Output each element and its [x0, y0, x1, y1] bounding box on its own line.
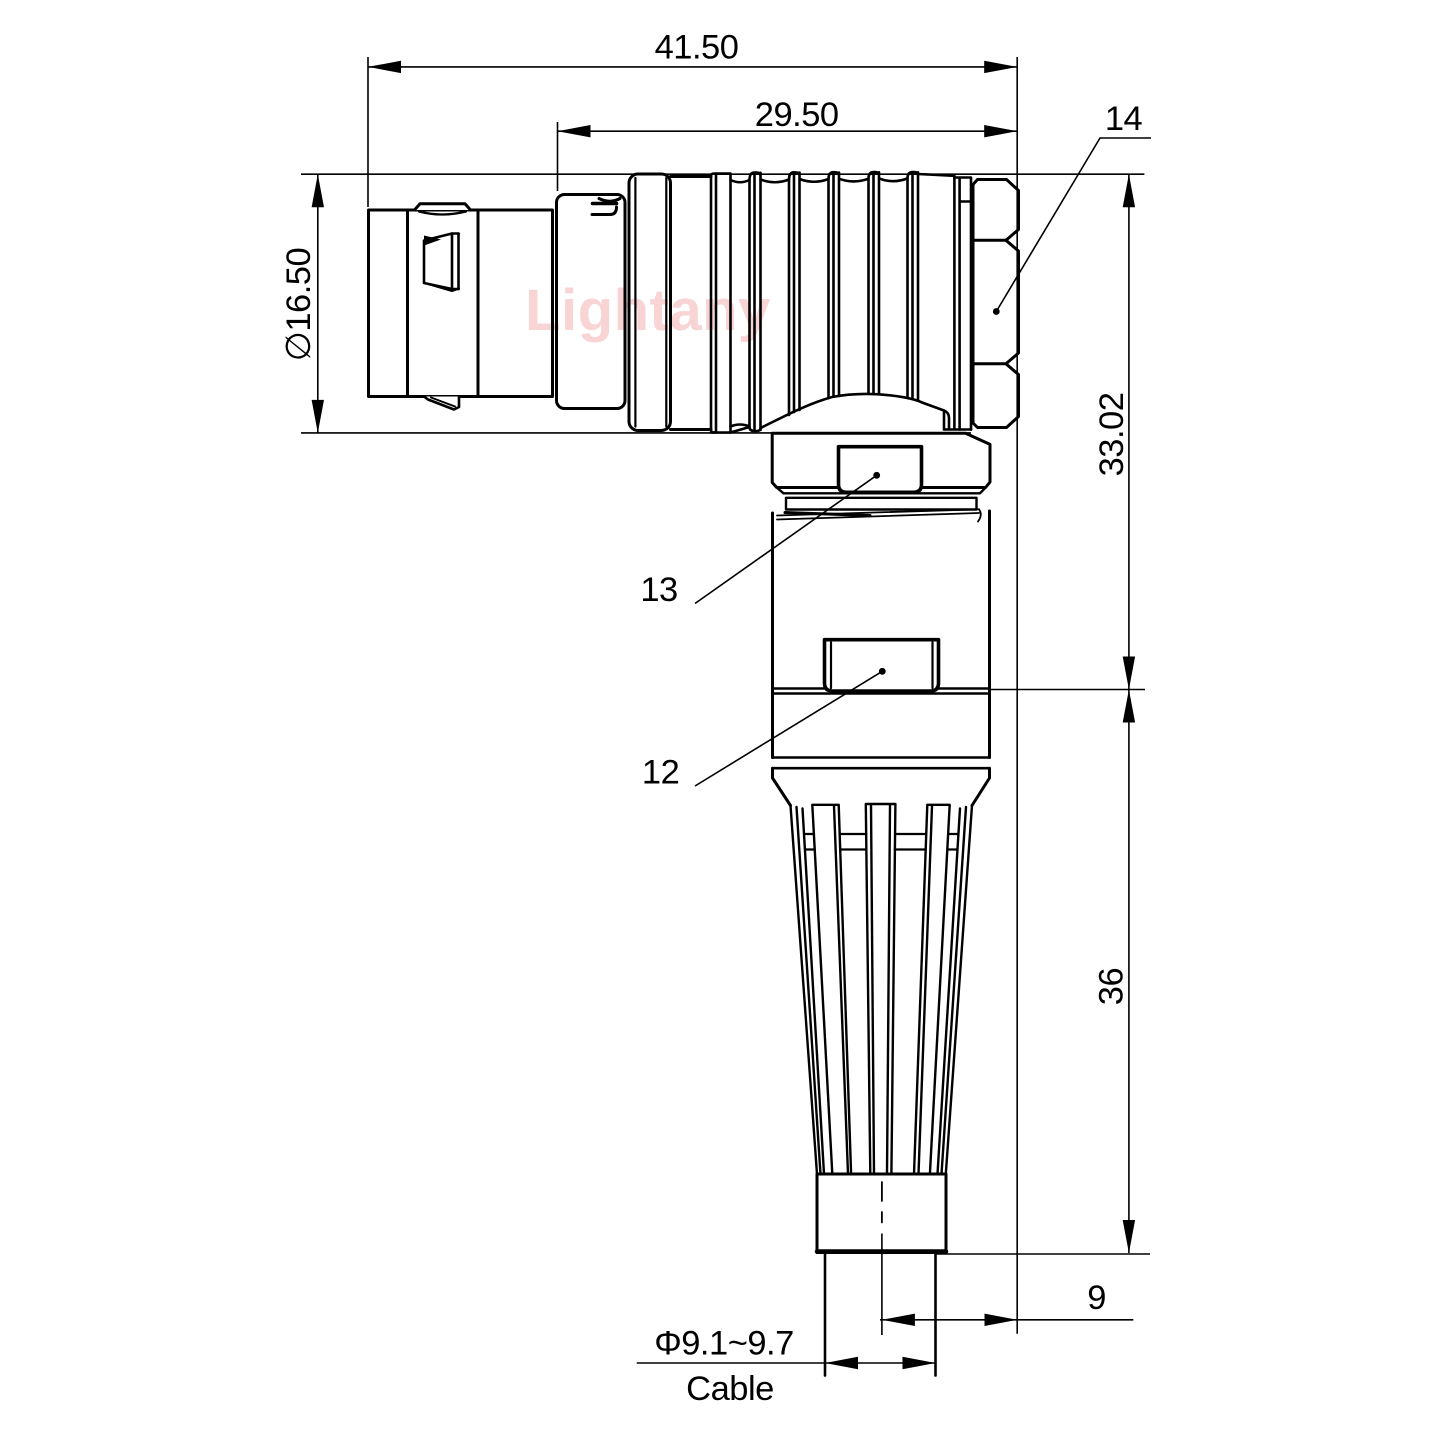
svg-text:33.02: 33.02 [1093, 393, 1131, 477]
svg-text:12: 12 [642, 754, 679, 792]
svg-text:9: 9 [1087, 1279, 1106, 1317]
svg-text:Φ9.1~9.7: Φ9.1~9.7 [654, 1325, 794, 1363]
svg-text:41.50: 41.50 [655, 29, 739, 67]
svg-text:13: 13 [640, 571, 677, 609]
svg-text:29.50: 29.50 [755, 96, 839, 134]
svg-text:14: 14 [1105, 100, 1143, 138]
svg-text:Lightany: Lightany [525, 278, 771, 343]
svg-text:Cable: Cable [686, 1370, 774, 1408]
svg-text:∅16.50: ∅16.50 [280, 248, 318, 361]
svg-text:36: 36 [1093, 968, 1131, 1005]
